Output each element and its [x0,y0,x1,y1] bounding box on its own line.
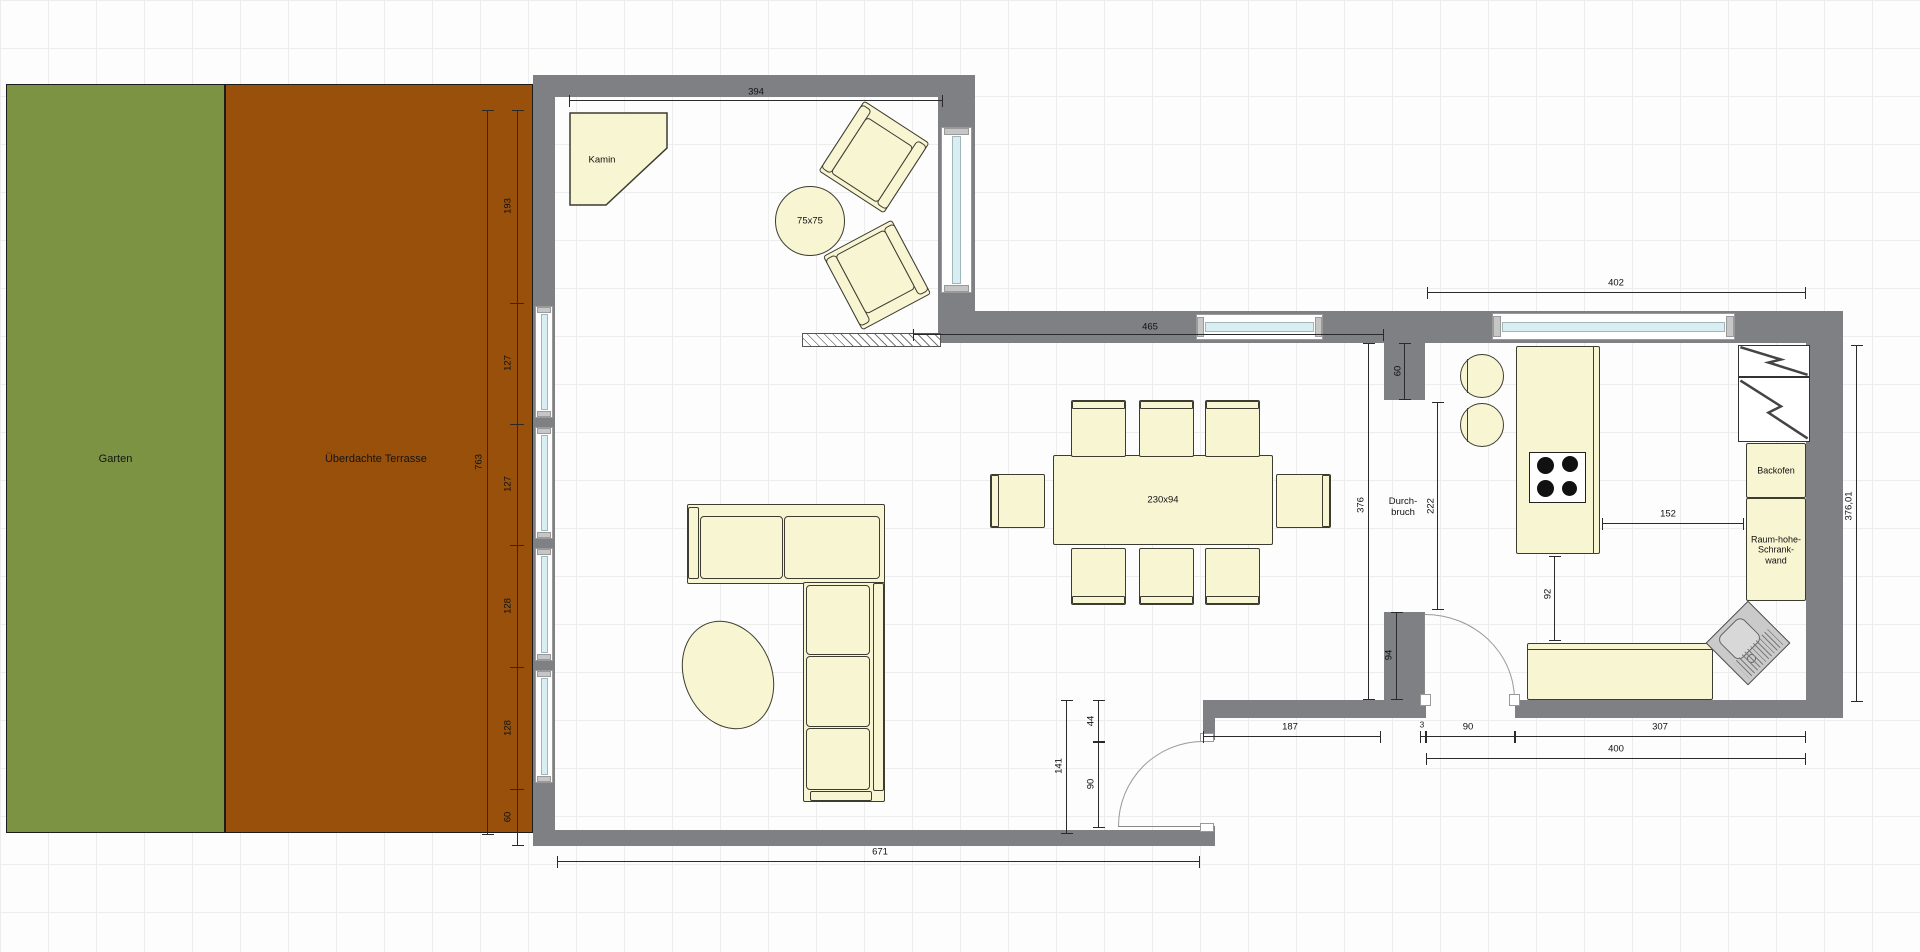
window-west-1[interactable] [535,306,553,418]
fridge-symbol-icon [1739,378,1809,441]
kitchen-counter[interactable] [1527,643,1713,700]
cooktop-burner [1562,456,1578,472]
dim-north-wall-width: 465 [1142,322,1158,333]
dim-tick [510,303,524,304]
coffee-table-oval[interactable] [665,606,791,744]
window-glass [1502,322,1725,332]
window-sill [1493,316,1501,337]
window-sill [537,532,551,538]
sofa-cushion [784,516,880,579]
opening-label: Durch- bruch [1389,496,1418,518]
garden-area[interactable]: Garten [6,84,225,833]
wall-south-living[interactable] [533,830,1215,846]
window-sill [537,411,551,417]
dim-opening-height: 222 [1426,498,1437,514]
corner-sink[interactable] [1706,601,1791,686]
dim-tick [510,667,524,668]
dining-chair[interactable] [990,474,1045,528]
dim-counter-run: 307 [1652,722,1668,733]
dim-line [1437,402,1438,610]
window-sill [537,428,551,434]
beam-hatch [802,333,941,347]
dim-alcove-width: 394 [748,87,764,98]
window-west-4[interactable] [535,670,553,783]
dim-left-seg-2: 127 [503,355,514,371]
wall-south-kitchen-a[interactable] [1203,700,1426,718]
counter-edge-line [1528,649,1712,650]
tall-cabinet-label: Raum-hohe- Schrank- wand [1751,534,1801,566]
wall-kitchen-east[interactable] [1806,311,1843,718]
dim-bottom-run: 187 [1282,722,1298,733]
window-dining-north[interactable] [1196,314,1323,340]
chair-backrest [1072,401,1125,409]
dim-island-to-counter: 92 [1543,589,1554,600]
dining-table-label: 230x94 [1147,495,1178,506]
sofa-cushion [806,585,870,655]
dim-line [1426,758,1806,759]
dining-chair[interactable] [1205,400,1260,457]
sofa-vertical [803,582,885,802]
window-sill [537,671,551,677]
dim-line [1856,345,1857,702]
sofa-cushion [700,516,783,579]
sofa-base [810,791,872,801]
window-sill [537,654,551,660]
stool-back-line [1467,408,1468,442]
window-sill [537,776,551,782]
dim-line [517,110,518,846]
dim-left-seg-3: 127 [503,476,514,492]
cooktop-burner [1537,480,1554,497]
dim-left-seg-bottom: 60 [503,812,514,823]
chair-backrest [1140,401,1193,409]
dim-line [1427,292,1806,293]
door-leaf [1424,614,1425,700]
door-swing-arc [1425,614,1515,700]
window-sill [944,128,969,135]
dining-chair[interactable] [1276,474,1331,528]
cooktop[interactable] [1529,452,1586,503]
sofa-cushion [806,728,870,790]
dim-left-seg-4: 128 [503,598,514,614]
dim-line [1098,700,1099,742]
dim-line [913,334,1384,335]
dim-living-width: 671 [872,847,888,858]
dining-chair[interactable] [1139,400,1194,457]
floor-plan-canvas: Garten Überdachte Terrasse [0,0,1920,952]
dim-kitchen-left-top: 60 [1393,366,1404,377]
window-alcove-east[interactable] [941,127,972,293]
window-glass [541,435,548,531]
chair-backrest [1206,596,1259,604]
side-table-label: 75x75 [797,216,823,227]
dim-line [569,100,943,101]
oven-cabinet[interactable]: Backofen [1746,443,1806,498]
window-west-2[interactable] [535,427,553,539]
dim-line [1066,700,1067,834]
dim-kitchen-door-gap: 3 [1420,721,1424,730]
window-kitchen-north[interactable] [1492,313,1735,340]
dim-line [1203,736,1381,737]
dining-chair[interactable] [1071,548,1126,605]
window-glass [952,136,961,284]
bar-stool-1[interactable] [1460,354,1504,398]
dim-terrace-total: 763 [474,454,485,470]
dim-kitchen-bottom-total: 400 [1608,744,1624,755]
window-glass [1205,322,1314,332]
dim-kitchen-door-width: 90 [1463,722,1474,733]
stool-back-line [1467,359,1468,393]
dim-left-seg-5: 128 [503,720,514,736]
dim-line [1098,742,1099,828]
window-west-3[interactable] [535,548,553,661]
dim-line [1602,523,1744,524]
dim-line [1396,612,1397,700]
dim-line [487,110,488,835]
dim-line [557,861,1200,862]
dim-line [1368,343,1369,700]
chair-backrest [1140,596,1193,604]
door-hinge [1200,823,1214,832]
fireplace-shape [569,112,669,207]
terrace-label: Überdachte Terrasse [325,453,427,465]
chair-backrest [1322,475,1330,527]
fireplace[interactable]: Kamin [569,112,669,207]
chair-backrest [1206,401,1259,409]
fridge-unit-2[interactable] [1738,377,1810,442]
dining-chair[interactable] [1205,548,1260,605]
sofa-armrest [873,583,884,791]
dim-kitchen-right-height: 376,01 [1844,491,1855,520]
dim-line [1554,556,1555,641]
dim-living-door-offset: 44 [1086,716,1097,727]
cooktop-burner [1562,481,1577,496]
coffee-table-round[interactable]: 75x75 [775,186,845,256]
dim-left-seg-top: 193 [503,198,514,214]
sofa-cushion [806,656,870,727]
door-hinge [1420,694,1431,706]
dim-tick [510,789,524,790]
dim-kitchen-left-bottom: 94 [1384,650,1395,661]
cooktop-burner [1537,457,1554,474]
tall-cabinet[interactable]: Raum-hohe- Schrank- wand [1746,498,1806,601]
sofa-horizontal [687,504,885,584]
bar-stool-2[interactable] [1460,403,1504,447]
fridge-symbol-icon [1739,346,1809,376]
dim-line [1404,343,1405,400]
fridge-unit-1[interactable] [1738,345,1810,377]
door-swing-arc [1118,741,1203,826]
sofa-armrest [688,507,699,579]
dining-table[interactable]: 230x94 [1053,455,1273,545]
window-glass [541,314,548,410]
garden-label: Garten [99,453,133,465]
window-sill [537,307,551,313]
dim-line [1515,736,1806,737]
chair-backrest [991,475,999,527]
island-overhang-line [1593,347,1594,553]
dim-living-door-total: 141 [1054,758,1065,774]
dim-kitchen-left-height: 376 [1356,497,1367,513]
dining-chair[interactable] [1071,400,1126,457]
dim-tick [510,545,524,546]
kitchen-island[interactable] [1516,346,1600,554]
window-sill [1726,316,1734,337]
dining-chair[interactable] [1139,548,1194,605]
chair-backrest [1072,596,1125,604]
oven-label: Backofen [1757,465,1795,476]
dim-kitchen-width: 402 [1608,278,1624,289]
fireplace-label: Kamin [589,154,616,165]
window-glass [541,678,548,775]
dim-line [1426,736,1515,737]
dim-island-to-wall: 152 [1660,509,1676,520]
door-leaf [1118,826,1203,827]
window-sill [537,549,551,555]
window-glass [541,556,548,653]
door-hinge [1509,694,1520,706]
dim-tick [510,424,524,425]
wall-south-kitchen-b[interactable] [1515,700,1843,718]
dim-living-door-width: 90 [1086,779,1097,790]
window-sill [944,285,969,292]
